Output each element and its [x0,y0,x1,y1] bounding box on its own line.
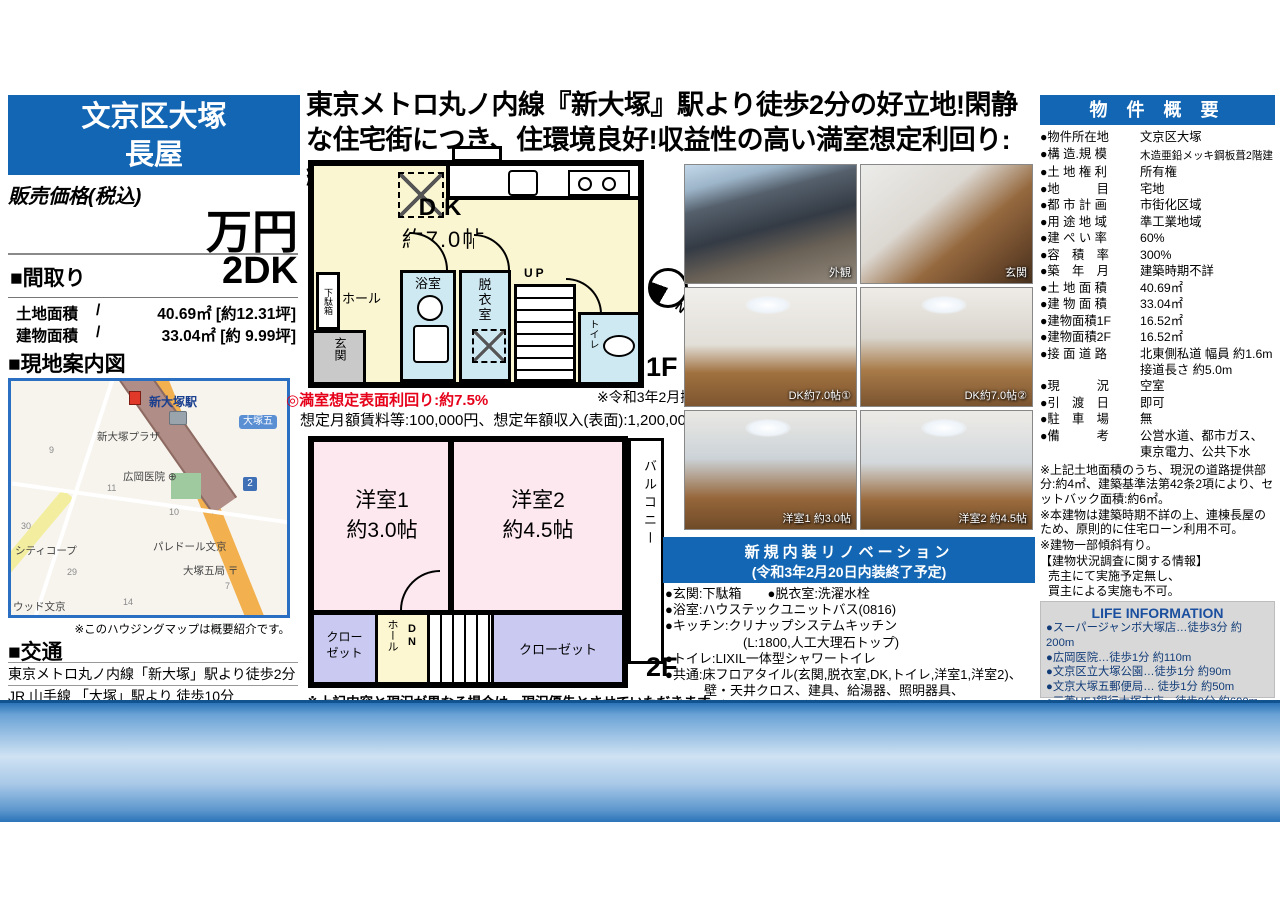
overview-label: ●土 地 面 積 [1040,280,1140,296]
life-information-box: LIFE INFORMATION ●スーパージャンボ大塚店…徒歩3分 約200m… [1040,601,1275,698]
photo-caption: 玄関 [1005,264,1027,280]
overview-label: ●物件所在地 [1040,129,1140,145]
overview-row: ●現 況空室 [1040,378,1278,394]
life-info-item: ●文京大塚五郵便局… 徒歩1分 約50m [1046,680,1269,695]
yield-highlight: ◎満室想定表面利回り:約7.5% [286,389,488,410]
renovation-list: ●玄関:下駄箱 ●脱衣室:洗濯水栓 ●浴室:ハウステックユニットバス(0816)… [665,586,1037,716]
dressing-room-label: 脱 衣 室 [478,277,491,322]
company-footer: K Style 一級建築士事務所 株式会社ケースタイル 【 加盟団体 】 ●一般… [0,700,1280,822]
photo-caption: DK約7.0帖② [965,387,1027,403]
plan2f-lower-band: クロー ゼット ホール D N クローゼット [314,610,622,682]
plot-number: 14 [123,597,133,607]
property-title-line1: 文京区大塚 [8,98,300,136]
overview-label: ●地 目 [1040,181,1140,197]
room1-label: 洋室1 [320,486,444,516]
flyer-page: 文京区大塚 長屋 販売価格(税込) 万円 ■間取り 2DK 土地面積 / 40.… [0,0,1280,905]
dk-label: DK [344,194,544,222]
hall-2f: ホール D N [378,615,430,682]
stairs-up-label: UP [524,266,547,280]
overview-label: ●接 面 道 路 [1040,346,1140,378]
overview-row: ●引 渡 日即可 [1040,395,1278,411]
overview-label: ●築 年 月 [1040,263,1140,279]
balcony-label: バルコニー [640,459,659,549]
overview-value: 無 [1140,411,1278,427]
overview-label: ●用 途 地 域 [1040,214,1140,230]
room1-size: 約3.0帖 [320,516,444,546]
renovation-subtitle: (令和3年2月20日内装終了予定) [663,562,1035,582]
overview-label: ●都 市 計 画 [1040,197,1140,213]
photo-exterior: 外観 [684,164,857,284]
overview-label: ●引 渡 日 [1040,395,1140,411]
survey-title: 【建物状況調査に関する情報】 [1040,554,1278,569]
overview-row: ●都 市 計 画市街化区域 [1040,197,1278,213]
overview-value: 市街化区域 [1140,197,1278,213]
shoe-cabinet: 下駄箱 [316,272,340,330]
floorplan-2f: 洋室1 約3.0帖 洋室2 約4.5帖 クロー ゼット ホール D N クローゼ… [308,436,628,688]
western-room-1: 洋室1 約3.0帖 [320,486,444,546]
floorplan-type: 2DK [8,250,298,293]
renovation-item: ●トイレ:LIXIL一体型シャワートイレ [665,651,1037,667]
plot-number: 9 [49,445,54,455]
slash: / [96,324,116,346]
washbasin-icon [417,295,443,321]
property-title-line2: 長屋 [8,136,300,174]
overview-row: ●備 考公営水道、都市ガス、 東京電力、公共下水 [1040,428,1278,460]
ceiling-light [921,296,967,314]
overview-row: ●用 途 地 域準工業地域 [1040,214,1278,230]
overview-row: ●築 年 月建築時期不詳 [1040,263,1278,279]
overview-label: ●建 物 面 積 [1040,296,1140,312]
ceiling-light [921,419,967,437]
overview-row: ●駐 車 場無 [1040,411,1278,427]
stairs-2f [430,615,494,682]
slash: / [96,302,116,324]
overview-value: 60% [1140,230,1278,246]
photo-room1: 洋室1 約3.0帖 [684,410,857,530]
overview-note: ※本建物は建築時期不詳の上、連棟長屋のため、原則的に住宅ローン利用不可。 [1040,508,1278,537]
overview-value: 33.04㎡ [1140,296,1278,312]
overview-value: 建築時期不詳 [1140,263,1278,279]
map-label-wood: ウッド文京 [13,599,66,614]
life-info-item: ●広岡医院…徒歩1分 約110m [1046,651,1269,666]
overview-note: ※上記土地面積のうち、現況の道路提供部分:約4㎡、建築基準法第42条2項により、… [1040,463,1278,507]
overview-value: 所有権 [1140,164,1278,180]
overview-label: ●建 ぺ い 率 [1040,230,1140,246]
map-label-station: 新大塚駅 [149,393,197,410]
ceiling-light [745,296,791,314]
route-number-badge: 2 [243,477,257,491]
overview-row: ●建物面積1F16.52㎡ [1040,313,1278,329]
overview-row: ●容 積 率300% [1040,247,1278,263]
floorplan-1f: DK 約7.0帖 下駄箱 ホール 玄関 浴室 脱 衣 室 UP トイレ [308,160,644,388]
washer-space-icon [472,329,506,363]
dressing-room: 脱 衣 室 [459,270,511,382]
plot-number: 10 [169,507,179,517]
dk-size: 約7.0帖 [344,222,544,254]
land-area-row: 土地面積 / 40.69㎡ [約12.31坪] [16,302,296,324]
bath-label: 浴室 [415,276,441,291]
life-info-item: ●スーパージャンボ大塚店…徒歩3分 約200m [1046,621,1269,651]
map-disclaimer: ※このハウジングマップは概要紹介です。 [8,621,290,637]
plot-number: 30 [21,521,31,531]
bathroom: 浴室 [400,270,456,382]
divider [8,297,298,298]
survey-body: 売主にて実施予定無し、 買主による実施も不可。 [1040,569,1278,598]
overview-value: 宅地 [1140,181,1278,197]
photo-caption: 洋室1 約3.0帖 [783,510,851,526]
renovation-header: 新規内装リノベーション (令和3年2月20日内装終了予定) [663,537,1035,583]
stairs-1f [514,284,576,382]
western-room-2: 洋室2 約4.5帖 [458,486,618,546]
overview-value: 40.69㎡ [1140,280,1278,296]
overview-row: ●物件所在地文京区大塚 [1040,129,1278,145]
map-label-plaza: 新大塚プラザ [97,429,160,444]
overview-row: ●地 目宅地 [1040,181,1278,197]
life-info-item: ●文京区立大塚公園…徒歩1分 約90m [1046,665,1269,680]
photo-caption: 外観 [829,264,851,280]
plot-number: 29 [67,567,77,577]
map-label-paledor: パレドール文京 [153,539,227,554]
partition-wall [448,442,454,614]
stairs-down-label: D N [408,623,416,649]
closet-2: クローゼット [494,615,622,682]
photo-caption: DK約7.0帖① [789,387,851,403]
location-map: 新大塚駅 大塚五 新大塚プラザ 広岡医院 ⊕ パレドール文京 大塚五局 〒 シテ… [8,378,290,618]
entrance-room: 玄関 [314,330,366,382]
overview-value: 北東側私道 幅員 約1.6m 接道長さ 約5.0m [1140,346,1278,378]
ceiling-light [745,419,791,437]
photo-entrance: 玄関 [860,164,1033,284]
sink-icon [508,170,538,196]
overview-label: ●建物面積1F [1040,313,1140,329]
renovation-item: ●キッチン:クリナップシステムキッチン (L:1800,人工大理石トップ) [665,618,1037,650]
property-marker [129,391,141,405]
overview-label: ●構 造.規 模 [1040,146,1140,164]
land-area-label: 土地面積 [16,302,96,324]
photo-room2: 洋室2 約4.5帖 [860,410,1033,530]
renovation-title: 新規内装リノベーション [663,541,1035,562]
overview-notes: ※上記土地面積のうち、現況の道路提供部分:約4㎡、建築基準法第42条2項により、… [1040,463,1278,599]
room2-label: 洋室2 [458,486,618,516]
overview-note: ※建物一部傾斜有り。 [1040,538,1278,553]
hall-label: ホール [342,288,381,307]
overview-label: ●駐 車 場 [1040,411,1140,427]
overview-row: ●建物面積2F16.52㎡ [1040,329,1278,345]
toilet-icon [603,335,635,357]
room2-size: 約4.5帖 [458,516,618,546]
door-arc [400,570,440,610]
toilet-label: トイレ [585,319,600,349]
hall-2f-label: ホール [384,619,400,652]
floor-label-1f: 1F [646,352,678,383]
land-area-value: 40.69㎡ [約12.31坪] [116,302,296,324]
closet-1: クロー ゼット [314,615,378,682]
overview-label: ●土 地 権 利 [1040,164,1140,180]
overview-row: ●構 造.規 模木造亜鉛メッキ鋼板葺2階建 [1040,146,1278,164]
building-area-value: 33.04㎡ [約 9.99坪] [116,324,296,346]
overview-value: 公営水道、都市ガス、 東京電力、公共下水 [1140,428,1278,460]
overview-label: ●備 考 [1040,428,1140,460]
overview-value: 空室 [1140,378,1278,394]
overview-header: 物 件 概 要 [1040,95,1275,125]
overview-row: ●建 ぺ い 率60% [1040,230,1278,246]
map-label-tag: 大塚五 [239,415,277,429]
building-area-label: 建物面積 [16,324,96,346]
map-label-clinic: 広岡医院 ⊕ [123,469,177,484]
overview-row: ●接 面 道 路北東側私道 幅員 約1.6m 接道長さ 約5.0m [1040,346,1278,378]
plot-number: 7 [225,581,230,591]
overview-body: ●物件所在地文京区大塚 ●構 造.規 模木造亜鉛メッキ鋼板葺2階建 ●土 地 権… [1040,129,1278,600]
balcony: バルコニー [628,438,664,664]
toilet-room: トイレ [578,312,638,382]
property-title-box: 文京区大塚 長屋 [8,95,300,175]
dk-room: DK 約7.0帖 [344,194,544,254]
renovation-item: ●浴室:ハウステックユニットバス(0816) [665,602,1037,618]
station-icon [169,411,187,425]
plot-number: 11 [107,483,116,493]
map-label-citycoop: シティコープ [15,543,77,558]
overview-value: 準工業地域 [1140,214,1278,230]
life-information-title: LIFE INFORMATION [1046,605,1269,621]
stove-icon [568,170,630,196]
bathtub-icon [413,325,449,363]
overview-value: 16.52㎡ [1140,329,1278,345]
overview-row: ●土 地 面 積40.69㎡ [1040,280,1278,296]
overview-value: 木造亜鉛メッキ鋼板葺2階建 [1140,146,1278,164]
overview-value: 16.52㎡ [1140,313,1278,329]
overview-label: ●建物面積2F [1040,329,1140,345]
overview-row: ●土 地 権 利所有権 [1040,164,1278,180]
overview-label: ●容 積 率 [1040,247,1140,263]
transport-line-1: 東京メトロ丸ノ内線「新大塚」駅より徒歩2分 [8,662,298,686]
map-label-post: 大塚五局 〒 [183,563,238,578]
building-area-row: 建物面積 / 33.04㎡ [約 9.99坪] [16,324,296,346]
overview-label: ●現 況 [1040,378,1140,394]
overview-value: 300% [1140,247,1278,263]
overview-value: 文京区大塚 [1140,129,1278,145]
photo-dk-2: DK約7.0帖② [860,287,1033,407]
renovation-item: ●玄関:下駄箱 ●脱衣室:洗濯水栓 [665,586,1037,602]
photo-dk-1: DK約7.0帖① [684,287,857,407]
overview-value: 即可 [1140,395,1278,411]
income-note: 想定月額賃料等:100,000円、想定年額収入(表面):1,200,000円 [300,409,709,430]
overview-row: ●建 物 面 積33.04㎡ [1040,296,1278,312]
map-section-label: ■現地案内図 [8,348,126,378]
photo-caption: 洋室2 約4.5帖 [959,510,1027,526]
